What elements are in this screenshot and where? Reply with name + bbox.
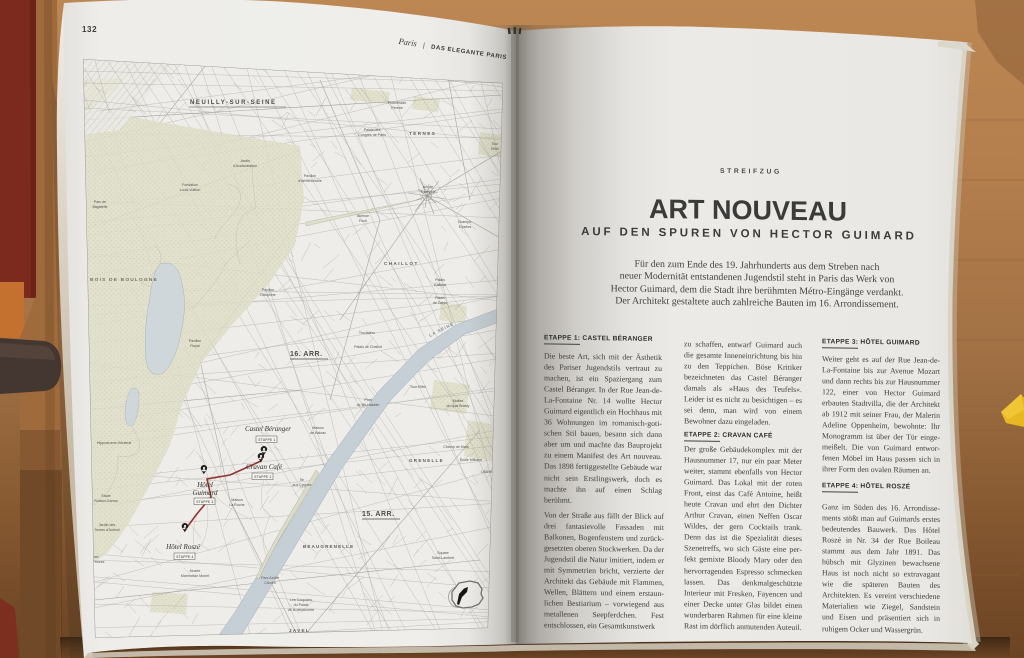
svg-text:BEAUGRENELLE: BEAUGRENELLE (303, 544, 354, 549)
svg-text:Maison: Maison (231, 498, 243, 502)
svg-text:BOIS DE BOULOGNE: BOIS DE BOULOGNE (90, 277, 158, 283)
svg-text:d'Armenonville: d'Armenonville (298, 179, 321, 183)
svg-text:Hôtel: Hôtel (196, 481, 213, 489)
svg-text:Bagatelle: Bagatelle (93, 205, 108, 209)
svg-text:Marmottan Monet: Marmottan Monet (181, 574, 209, 578)
svg-text:Castel Béranger: Castel Béranger (245, 425, 291, 433)
svg-text:Jardin: Jardin (240, 159, 250, 163)
svg-text:Fondation: Fondation (182, 183, 198, 187)
svg-text:Pereire: Pereire (391, 106, 403, 110)
svg-text:d'Acclimatation: d'Acclimatation (233, 164, 257, 168)
svg-text:Louis Vuitton: Louis Vuitton (180, 188, 201, 192)
svg-text:Royal: Royal (190, 344, 199, 348)
svg-text:Avenue: Avenue (357, 214, 369, 218)
svg-text:du Palais: du Palais (294, 603, 309, 607)
svg-text:ETAPPE 1: ETAPPE 1 (259, 438, 276, 442)
svg-text:aux Cygnes: aux Cygnes (293, 483, 312, 487)
svg-text:Square: Square (437, 551, 449, 555)
svg-text:Parc André: Parc André (261, 576, 279, 580)
svg-text:Dauphine: Dauphine (260, 293, 275, 297)
svg-text:Musée: Musée (453, 399, 464, 403)
svg-text:Musée: Musée (190, 569, 201, 573)
svg-text:ETAPPE 2: ETAPPE 2 (255, 475, 272, 479)
svg-text:La Roche: La Roche (229, 503, 244, 507)
svg-text:Pavillon: Pavillon (304, 174, 317, 178)
svg-text:Roland-Garros: Roland-Garros (94, 499, 118, 503)
svg-text:Promenade: Promenade (388, 101, 407, 105)
svg-text:Hôtel Roszé: Hôtel Roszé (165, 543, 201, 551)
svg-text:GRENELLE: GRENELLE (409, 458, 444, 463)
svg-text:Pavillon: Pavillon (189, 339, 202, 343)
svg-text:15. ARR.: 15. ARR. (362, 511, 395, 518)
svg-text:Congrès de Paris: Congrès de Paris (358, 133, 386, 137)
svg-text:Palais de Chaillot: Palais de Chaillot (354, 345, 382, 349)
svg-text:de la découverte: de la découverte (288, 608, 315, 612)
svg-text:ETAPPE 3: ETAPPE 3 (197, 500, 214, 504)
svg-text:Arc de: Arc de (423, 185, 433, 189)
svg-text:Pavillon: Pavillon (262, 288, 275, 292)
svg-text:Maison: Maison (312, 426, 324, 430)
svg-text:Jardin des: Jardin des (99, 523, 116, 527)
svg-text:ETAPPE 4: ETAPPE 4 (177, 555, 194, 559)
svg-text:TERNES: TERNES (409, 131, 436, 136)
svg-text:Champ de Mars: Champ de Mars (443, 445, 469, 449)
svg-text:CHAILLOT: CHAILLOT (384, 261, 419, 266)
svg-text:Cravan Café: Cravan Café (246, 463, 283, 471)
svg-text:Guimard: Guimard (192, 489, 218, 497)
svg-text:de Tokyo: de Tokyo (433, 301, 447, 305)
svg-text:Serres d'Auteuil: Serres d'Auteuil (94, 528, 119, 532)
svg-text:NEUILLY-SUR-SEINE: NEUILLY-SUR-SEINE (190, 100, 277, 106)
svg-text:Triomphe: Triomphe (420, 190, 435, 194)
svg-text:Stade: Stade (101, 494, 110, 498)
svg-text:Saint-Lambert: Saint-Lambert (432, 556, 455, 560)
svg-text:Palais: Palais (435, 278, 445, 282)
svg-text:Galliera: Galliera (434, 283, 446, 287)
svg-text:Palais des: Palais des (364, 128, 381, 132)
svg-text:Palais: Palais (435, 296, 445, 300)
svg-text:de Bir-Hakeim: de Bir-Hakeim (357, 403, 380, 407)
svg-text:Citroën: Citroën (264, 581, 276, 585)
svg-text:Pont: Pont (364, 398, 371, 402)
svg-text:Trocadéro: Trocadéro (359, 331, 375, 335)
svg-text:Tour Eiffel: Tour Eiffel (410, 385, 426, 389)
svg-text:Île: Île (299, 478, 304, 482)
svg-text:Parc de: Parc de (94, 200, 106, 204)
svg-text:Les Coupoles: Les Coupoles (290, 598, 312, 602)
svg-text:16. ARR.: 16. ARR. (290, 351, 323, 358)
svg-text:Foch: Foch (359, 219, 367, 223)
svg-text:Hippodrome d'Auteuil: Hippodrome d'Auteuil (97, 441, 131, 445)
svg-text:du quai Branly: du quai Branly (447, 404, 470, 408)
svg-text:de Balzac: de Balzac (310, 431, 326, 435)
